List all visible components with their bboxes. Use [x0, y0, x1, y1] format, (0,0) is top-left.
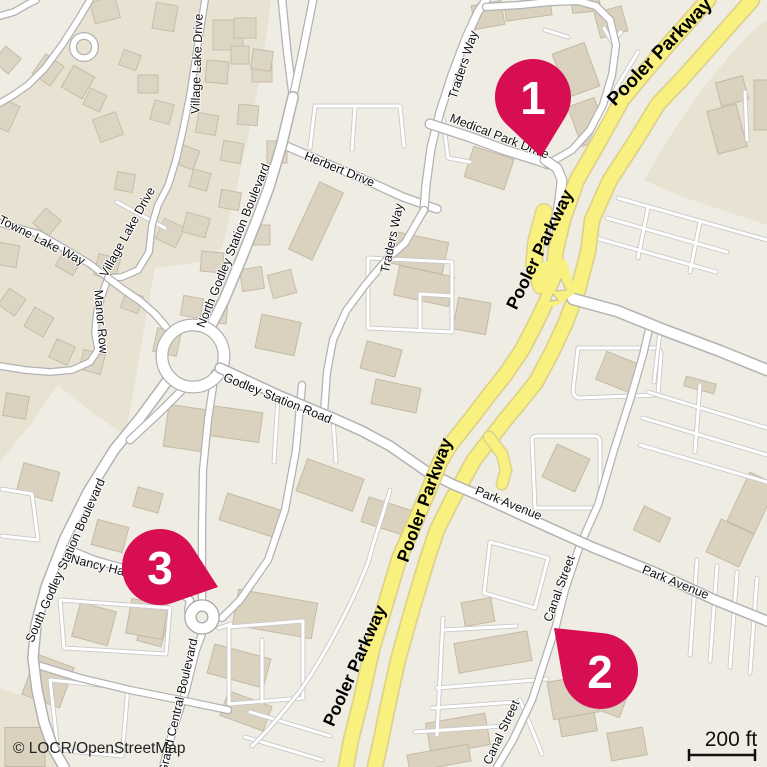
svg-text:200 ft: 200 ft	[705, 728, 758, 751]
svg-text:2: 2	[587, 646, 613, 698]
svg-text:© LOCR/OpenStreetMap: © LOCR/OpenStreetMap	[13, 740, 186, 757]
svg-text:1: 1	[520, 72, 546, 124]
svg-text:3: 3	[147, 542, 173, 594]
